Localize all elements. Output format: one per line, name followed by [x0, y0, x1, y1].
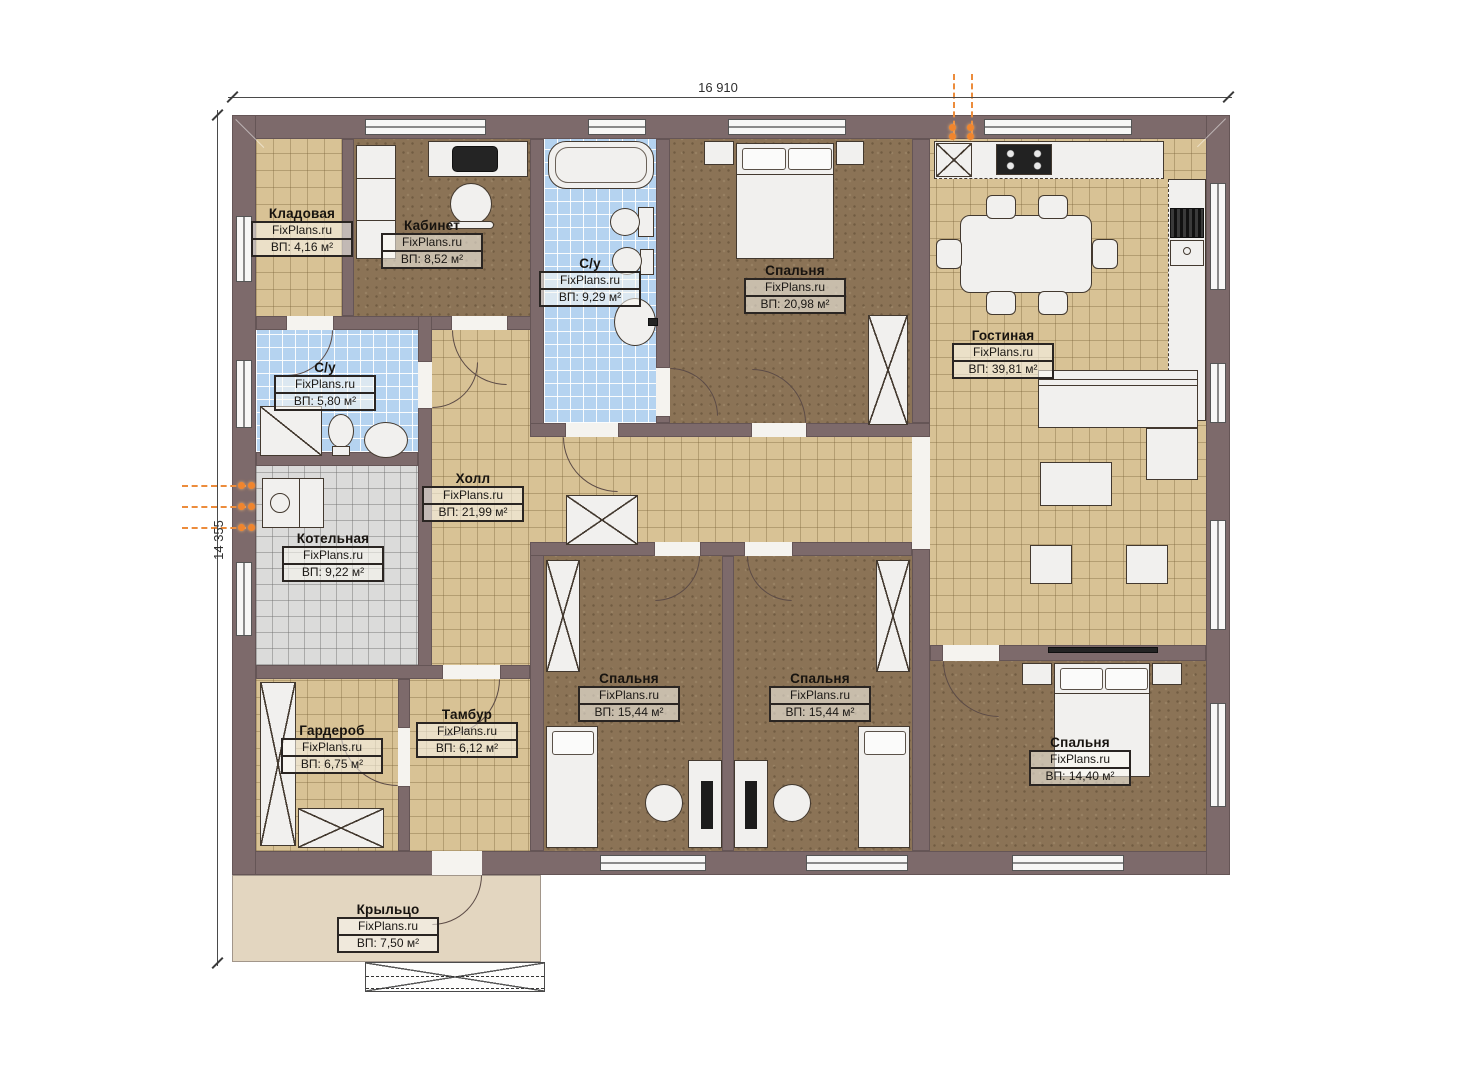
- dining-chair: [1038, 291, 1068, 315]
- double-bed: [736, 143, 834, 259]
- window: [236, 562, 252, 636]
- room-name: Кладовая: [269, 206, 335, 221]
- step-line: [366, 988, 544, 989]
- room-area: ВП: 8,52 м²: [381, 250, 483, 269]
- pillow: [788, 148, 832, 170]
- boiler-dial: [270, 493, 290, 513]
- door-opening: [398, 728, 410, 786]
- window: [236, 216, 252, 282]
- room-label-spalnya-br: Спальня FixPlans.ru ВП: 14,40 м²: [1029, 735, 1131, 786]
- wardrobe: [868, 315, 908, 425]
- room-label-kladovaya: Кладовая FixPlans.ru ВП: 4,16 м²: [251, 206, 353, 257]
- kitchen-sink-unit: [936, 143, 972, 177]
- monitor: [701, 781, 713, 829]
- window: [984, 119, 1132, 135]
- dining-chair: [936, 239, 962, 269]
- dining-table: [960, 215, 1092, 293]
- room-area: ВП: 21,99 м²: [422, 503, 524, 522]
- room-label-su-2: С/у FixPlans.ru ВП: 5,80 м²: [274, 360, 376, 411]
- floor-plan-canvas: 16 910 14 355: [0, 0, 1473, 1080]
- corner-sofa: [1038, 370, 1198, 428]
- tv: [1048, 647, 1158, 653]
- bathroom-sink: [364, 422, 408, 458]
- room-area: ВП: 9,22 м²: [282, 563, 384, 582]
- pouf: [1126, 545, 1168, 584]
- room-label-spalnya-top: Спальня FixPlans.ru ВП: 20,98 м²: [744, 263, 846, 314]
- room-label-gostinaya: Гостиная FixPlans.ru ВП: 39,81 м²: [952, 328, 1054, 379]
- dining-chair: [986, 195, 1016, 219]
- room-area: ВП: 39,81 м²: [952, 360, 1054, 379]
- wall-segment: [333, 316, 452, 330]
- toilet-base: [332, 446, 350, 456]
- coffee-table: [1040, 462, 1112, 506]
- shower-cabin: [260, 406, 322, 456]
- door-opening: [943, 645, 999, 661]
- toilet-bowl: [328, 414, 354, 448]
- room-area: ВП: 7,50 м²: [337, 934, 439, 953]
- room-area: ВП: 6,12 м²: [416, 739, 518, 758]
- wall-segment: [912, 549, 930, 851]
- utility-dot-icon: [248, 482, 255, 489]
- door-opening: [655, 542, 700, 556]
- door-opening: [566, 423, 618, 437]
- dimension-height-label: 14 355: [211, 520, 226, 560]
- utility-dot-icon: [248, 503, 255, 510]
- door-opening: [752, 423, 806, 437]
- bidet-base: [640, 249, 654, 275]
- door-opening: [443, 665, 500, 679]
- room-label-garderob: Гардероб FixPlans.ru ВП: 6,75 м²: [281, 723, 383, 774]
- window: [1210, 363, 1226, 423]
- sink-tap: [648, 318, 658, 326]
- room-name: Кабинет: [404, 218, 460, 233]
- room-name: Спальня: [1050, 735, 1110, 750]
- pillow: [1060, 668, 1103, 690]
- room-name: Спальня: [765, 263, 825, 278]
- room-name: Холл: [456, 471, 491, 486]
- toilet-bowl: [610, 208, 640, 236]
- utility-line-icon: [182, 506, 246, 508]
- wall-segment: [500, 665, 530, 679]
- nightstand: [1022, 663, 1052, 685]
- room-name: С/у: [579, 256, 601, 271]
- room-area: ВП: 20,98 м²: [744, 295, 846, 314]
- room-area: ВП: 9,29 м²: [539, 288, 641, 307]
- utility-dot-icon: [967, 124, 974, 131]
- room-area: ВП: 14,40 м²: [1029, 767, 1131, 786]
- wall-segment: [418, 316, 432, 362]
- room-name: Тамбур: [442, 707, 492, 722]
- wall-segment: [530, 423, 566, 437]
- room-label-holl: Холл FixPlans.ru ВП: 21,99 м²: [422, 471, 524, 522]
- wall-segment: [722, 556, 734, 851]
- room-name: Котельная: [297, 531, 369, 546]
- room-area: ВП: 5,80 м²: [274, 392, 376, 411]
- door-opening: [745, 542, 792, 556]
- window: [1210, 703, 1226, 807]
- room-label-su-1: С/у FixPlans.ru ВП: 9,29 м²: [539, 256, 641, 307]
- boiler-divider: [299, 479, 300, 527]
- utility-dot-icon: [248, 524, 255, 531]
- room-label-spalnya-right: Спальня FixPlans.ru ВП: 15,44 м²: [769, 671, 871, 722]
- hall-storage-box: [566, 495, 638, 545]
- sink-drain: [1183, 247, 1191, 255]
- room-label-tambur: Тамбур FixPlans.ru ВП: 6,12 м²: [416, 707, 518, 758]
- pillow: [864, 731, 906, 755]
- door-opening: [452, 316, 507, 330]
- pouf: [1030, 545, 1072, 584]
- dimension-width-label: 16 910: [698, 80, 738, 95]
- wall-segment: [530, 542, 544, 851]
- step-line: [366, 976, 544, 977]
- single-bed: [546, 726, 598, 848]
- window: [588, 119, 646, 135]
- window: [600, 855, 706, 871]
- dining-chair: [1038, 195, 1068, 219]
- room-label-spalnya-left: Спальня FixPlans.ru ВП: 15,44 м²: [578, 671, 680, 722]
- room-area: ВП: 15,44 м²: [769, 703, 871, 722]
- wall-segment: [418, 408, 432, 679]
- porch-steps: [365, 962, 545, 992]
- sofa-back-line: [1039, 385, 1197, 386]
- utility-dot-icon: [238, 503, 245, 510]
- room-name: Гостиная: [972, 328, 1035, 343]
- entrance-door-opening: [432, 851, 482, 875]
- desk-chair: [773, 784, 811, 822]
- wall-segment: [700, 542, 745, 556]
- cabinet-divider: [357, 178, 395, 179]
- monitor: [745, 781, 757, 829]
- wall-segment: [656, 416, 670, 423]
- single-bed: [858, 726, 910, 848]
- nightstand: [704, 141, 734, 165]
- room-name: Гардероб: [299, 723, 364, 738]
- nightstand: [836, 141, 864, 165]
- open-passage: [912, 437, 930, 549]
- room-name: Спальня: [599, 671, 659, 686]
- utility-dot-icon: [949, 124, 956, 131]
- room-area: ВП: 4,16 м²: [251, 238, 353, 257]
- utility-dot-icon: [967, 133, 974, 140]
- window: [1210, 183, 1226, 290]
- printer: [452, 146, 498, 172]
- computer-desk: [688, 760, 722, 848]
- utility-dot-icon: [238, 482, 245, 489]
- dining-chair: [1092, 239, 1118, 269]
- door-opening: [656, 368, 670, 416]
- dimension-line-top: [228, 97, 1232, 98]
- bathtub-inner: [555, 147, 647, 183]
- window: [806, 855, 908, 871]
- wardrobe: [546, 560, 580, 672]
- desk-chair: [645, 784, 683, 822]
- storage-chest: [298, 808, 384, 848]
- door-opening: [287, 316, 333, 330]
- sofa-back-line: [1039, 379, 1197, 380]
- wardrobe: [876, 560, 910, 672]
- wall-segment: [398, 786, 410, 851]
- wall-segment: [930, 645, 943, 661]
- wall-segment: [792, 542, 912, 556]
- window: [1012, 855, 1124, 871]
- sofa-chaise: [1146, 428, 1198, 480]
- pillow: [1105, 668, 1148, 690]
- utility-line-icon: [182, 485, 246, 487]
- blanket-line: [737, 174, 833, 175]
- wall-segment: [256, 665, 443, 679]
- utility-dot-icon: [949, 133, 956, 140]
- pillow: [552, 731, 594, 755]
- boiler-unit: [262, 478, 324, 528]
- bathtub: [548, 141, 654, 189]
- toilet-tank: [638, 207, 654, 237]
- door-opening: [418, 362, 432, 408]
- computer-desk: [734, 760, 768, 848]
- room-name: Спальня: [790, 671, 850, 686]
- fridge: [1170, 208, 1204, 238]
- window: [728, 119, 846, 135]
- dining-chair: [986, 291, 1016, 315]
- wall-segment: [618, 423, 752, 437]
- stove: [996, 144, 1052, 175]
- wall-segment: [398, 679, 410, 728]
- room-label-kotelnaya: Котельная FixPlans.ru ВП: 9,22 м²: [282, 531, 384, 582]
- window: [1210, 520, 1226, 630]
- window: [365, 119, 486, 135]
- utility-dot-icon: [238, 524, 245, 531]
- wall-segment: [256, 316, 287, 330]
- room-label-kryltso: Крыльцо FixPlans.ru ВП: 7,50 м²: [337, 902, 439, 953]
- blanket-line: [1055, 693, 1149, 694]
- wall-segment: [806, 423, 930, 437]
- room-name: Крыльцо: [357, 902, 420, 917]
- nightstand: [1152, 663, 1182, 685]
- wall-segment: [912, 139, 930, 423]
- room-area: ВП: 6,75 м²: [281, 755, 383, 774]
- pillow: [742, 148, 786, 170]
- wall-segment: [656, 139, 670, 368]
- window: [236, 360, 252, 428]
- room-label-kabinet: Кабинет FixPlans.ru ВП: 8,52 м²: [381, 218, 483, 269]
- room-area: ВП: 15,44 м²: [578, 703, 680, 722]
- room-name: С/у: [314, 360, 336, 375]
